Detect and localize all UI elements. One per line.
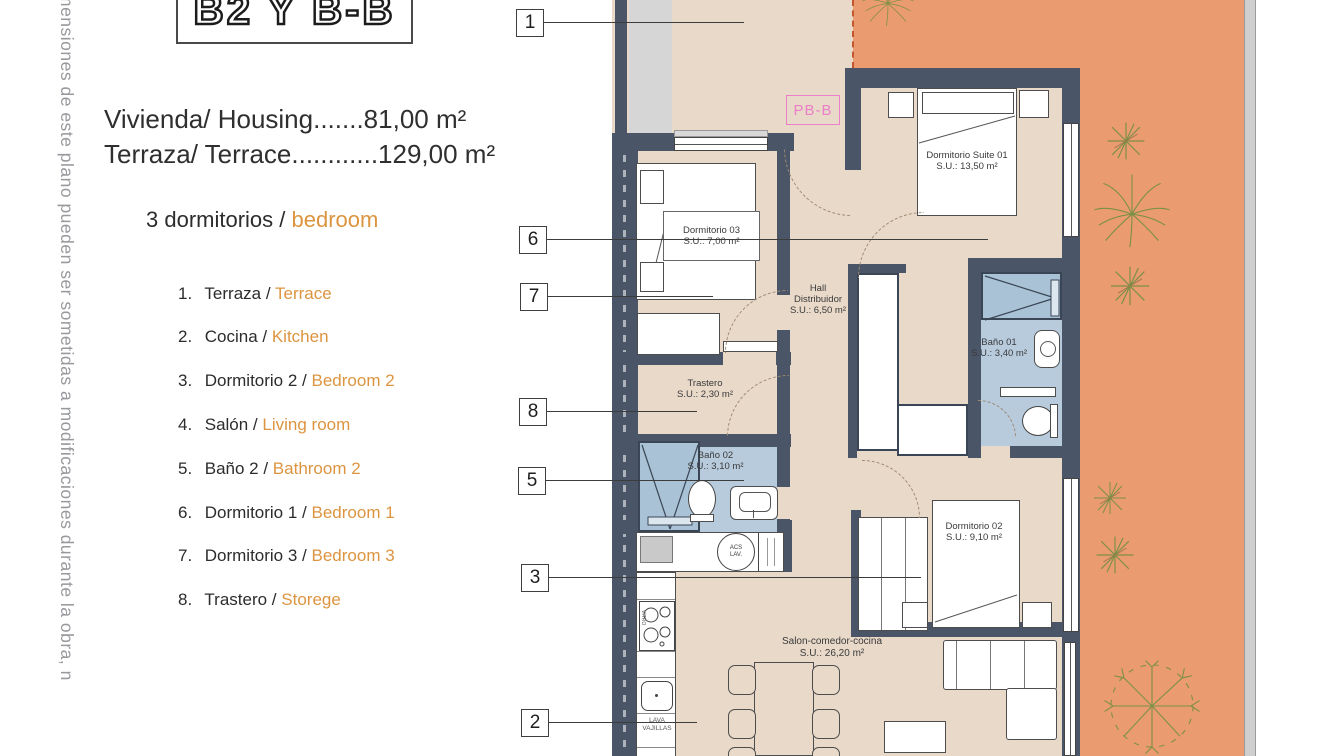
dining-chair	[728, 747, 756, 756]
wall-segment	[968, 258, 1080, 272]
marker-bathroom2: 5	[518, 467, 546, 495]
dining-chair	[812, 709, 840, 739]
sofa-chaise	[1006, 688, 1057, 740]
plan-title-code: B2 Y B-B	[178, 0, 411, 34]
plant-icon	[1103, 118, 1149, 164]
legend-num: 4.	[178, 415, 200, 435]
legend-num: 8.	[178, 590, 200, 610]
legend-es: Salón /	[205, 415, 258, 434]
legend-num: 2.	[178, 327, 200, 347]
plant-icon	[1090, 478, 1130, 518]
window-bedroom3	[674, 130, 768, 137]
wall-segment	[968, 446, 978, 458]
hall-closet	[897, 404, 968, 456]
marker-bedroom3: 7	[520, 283, 548, 311]
terrace-area-line: Terraza/ Terrace............129,00 m²	[104, 139, 495, 170]
legend-es: Dormitorio 1 /	[205, 503, 307, 522]
leader-line	[548, 296, 713, 297]
room-label-trastero: Trastero S.U.: 2,30 m²	[660, 378, 750, 400]
window-bedroom2	[1063, 478, 1079, 632]
palm-icon	[1088, 168, 1176, 256]
dining-chair	[728, 709, 756, 739]
legend-en: Terrace	[275, 284, 332, 303]
title-block: B2 Y B-B	[176, 0, 413, 44]
wall-segment	[783, 534, 792, 572]
housing-area-line: Vivienda/ Housing.......81,00 m²	[104, 104, 466, 135]
legend-item: 6. Dormitorio 1 / Bedroom 1	[178, 503, 395, 523]
legend-num: 3.	[178, 371, 200, 391]
window-suite	[1063, 123, 1079, 237]
bed-fold-line	[932, 500, 1020, 628]
legend-item: 2. Cocina / Kitchen	[178, 327, 329, 347]
leader-line	[549, 722, 697, 723]
floorplan-page: mensiones de este plano pueden ser somet…	[0, 0, 1319, 756]
legend-en: Bedroom 1	[312, 503, 395, 522]
shower-bathroom1	[981, 272, 1062, 320]
marker-bedroom1: 6	[519, 226, 547, 254]
leader-line	[549, 577, 921, 578]
vitro-label: VITRO	[639, 610, 645, 625]
marker-trastero: 8	[519, 398, 547, 426]
acs-boiler: ACS LAV.	[717, 533, 755, 571]
plant-icon	[845, 0, 931, 32]
room-label-bathroom1: Baño 01 S.U.: 3,40 m²	[953, 337, 1045, 359]
washer-appliance	[640, 536, 673, 563]
leader-line	[547, 411, 697, 412]
legend-es: Dormitorio 3 /	[205, 546, 307, 565]
leader-line	[546, 480, 744, 481]
kitchen-sink	[641, 681, 673, 711]
plant-icon	[1092, 532, 1138, 578]
towel-rail-bathroom1	[1000, 387, 1056, 397]
sofa	[943, 640, 1057, 690]
marker-terrace: 1	[516, 9, 544, 37]
bedrooms-summary-es: 3 dormitorios /	[146, 207, 285, 232]
wardrobe-bedroom3	[637, 313, 720, 355]
legend-item: 3. Dormitorio 2 / Bedroom 2	[178, 371, 395, 391]
marker-cocina: 2	[521, 709, 549, 737]
terrace-right	[1080, 0, 1244, 756]
legend-num: 1.	[178, 284, 200, 304]
shower-glyph	[983, 274, 1064, 322]
nightstand	[1022, 602, 1052, 628]
legend-en: Kitchen	[272, 327, 329, 346]
kitchen-counter: VITRO LAVA VAJILLAS	[636, 572, 676, 756]
coffee-table	[884, 721, 946, 753]
margin-disclaimer-text: mensiones de este plano pueden ser somet…	[56, 0, 77, 756]
utility-cabinet	[758, 533, 784, 571]
legend-item: 8. Trastero / Storege	[178, 590, 341, 610]
room-label-suite: Dormitorio Suite 01 S.U.: 13,50 m²	[906, 150, 1028, 172]
legend-item: 5. Baño 2 / Bathroom 2	[178, 459, 361, 479]
toilet-tank	[1050, 404, 1058, 438]
toilet-bathroom2	[688, 480, 716, 518]
plan-code-text: PB-B	[793, 102, 832, 119]
plant-icon	[1106, 262, 1154, 310]
wall-segment	[851, 68, 1080, 88]
glass-door-living	[1064, 642, 1076, 756]
legend-es: Dormitorio 2 /	[205, 371, 307, 390]
legend-num: 6.	[178, 503, 200, 523]
dining-table	[754, 662, 814, 756]
wall-segment	[615, 0, 627, 137]
nightstand	[902, 602, 928, 628]
legend-es: Cocina /	[205, 327, 267, 346]
nightstand	[1019, 90, 1049, 118]
legend-es: Terraza /	[204, 284, 270, 303]
dining-chair	[812, 747, 840, 756]
hob-vitro: VITRO	[639, 601, 675, 651]
bedrooms-summary: 3 dormitorios / bedroom	[146, 207, 378, 233]
utility-counter: ACS LAV.	[636, 532, 784, 572]
legend-es: Trastero /	[204, 590, 276, 609]
plan-code-badge: PB-B	[786, 95, 840, 125]
room-label-salon: Salon-comedor-cocina S.U.: 26,20 m²	[772, 636, 892, 660]
legend-num: 7.	[178, 546, 200, 566]
legend-en: Living room	[262, 415, 350, 434]
entry-path	[629, 0, 672, 135]
terrace-boundary-wall	[1244, 0, 1256, 756]
tree-icon	[1098, 652, 1206, 756]
leader-line	[544, 22, 744, 23]
leader-line	[547, 239, 988, 240]
nightstand	[888, 92, 914, 118]
room-label-bathroom2: Baño 02 S.U.: 3,10 m²	[668, 450, 763, 472]
dining-chair	[812, 665, 840, 695]
legend-num: 5.	[178, 459, 200, 479]
legend-es: Baño 2 /	[205, 459, 268, 478]
room-label-bedroom2: Dormitorio 02 S.U.: 9,10 m²	[920, 521, 1028, 543]
window-bedroom3	[674, 137, 768, 151]
legend-en: Storege	[281, 590, 341, 609]
legend-en: Bedroom 2	[312, 371, 395, 390]
room-label-bedroom3: Dormitorio 03 S.U.: 7,00 m²	[663, 211, 760, 261]
toilet-tank	[690, 514, 714, 522]
legend-item: 7. Dormitorio 3 / Bedroom 3	[178, 546, 395, 566]
legend-item: 1. Terraza / Terrace	[178, 284, 332, 304]
dining-chair	[728, 665, 756, 695]
sink-bathroom2	[730, 486, 778, 520]
bedrooms-summary-en: bedroom	[292, 207, 379, 232]
legend-item: 4. Salón / Living room	[178, 415, 350, 435]
marker-bedroom2: 3	[521, 564, 549, 592]
legend-en: Bedroom 3	[312, 546, 395, 565]
wall-segment	[1010, 446, 1080, 458]
legend-en: Bathroom 2	[273, 459, 361, 478]
acs-label: ACS LAV.	[724, 545, 748, 559]
dishwasher-label: LAVA VAJILLAS	[637, 717, 677, 732]
